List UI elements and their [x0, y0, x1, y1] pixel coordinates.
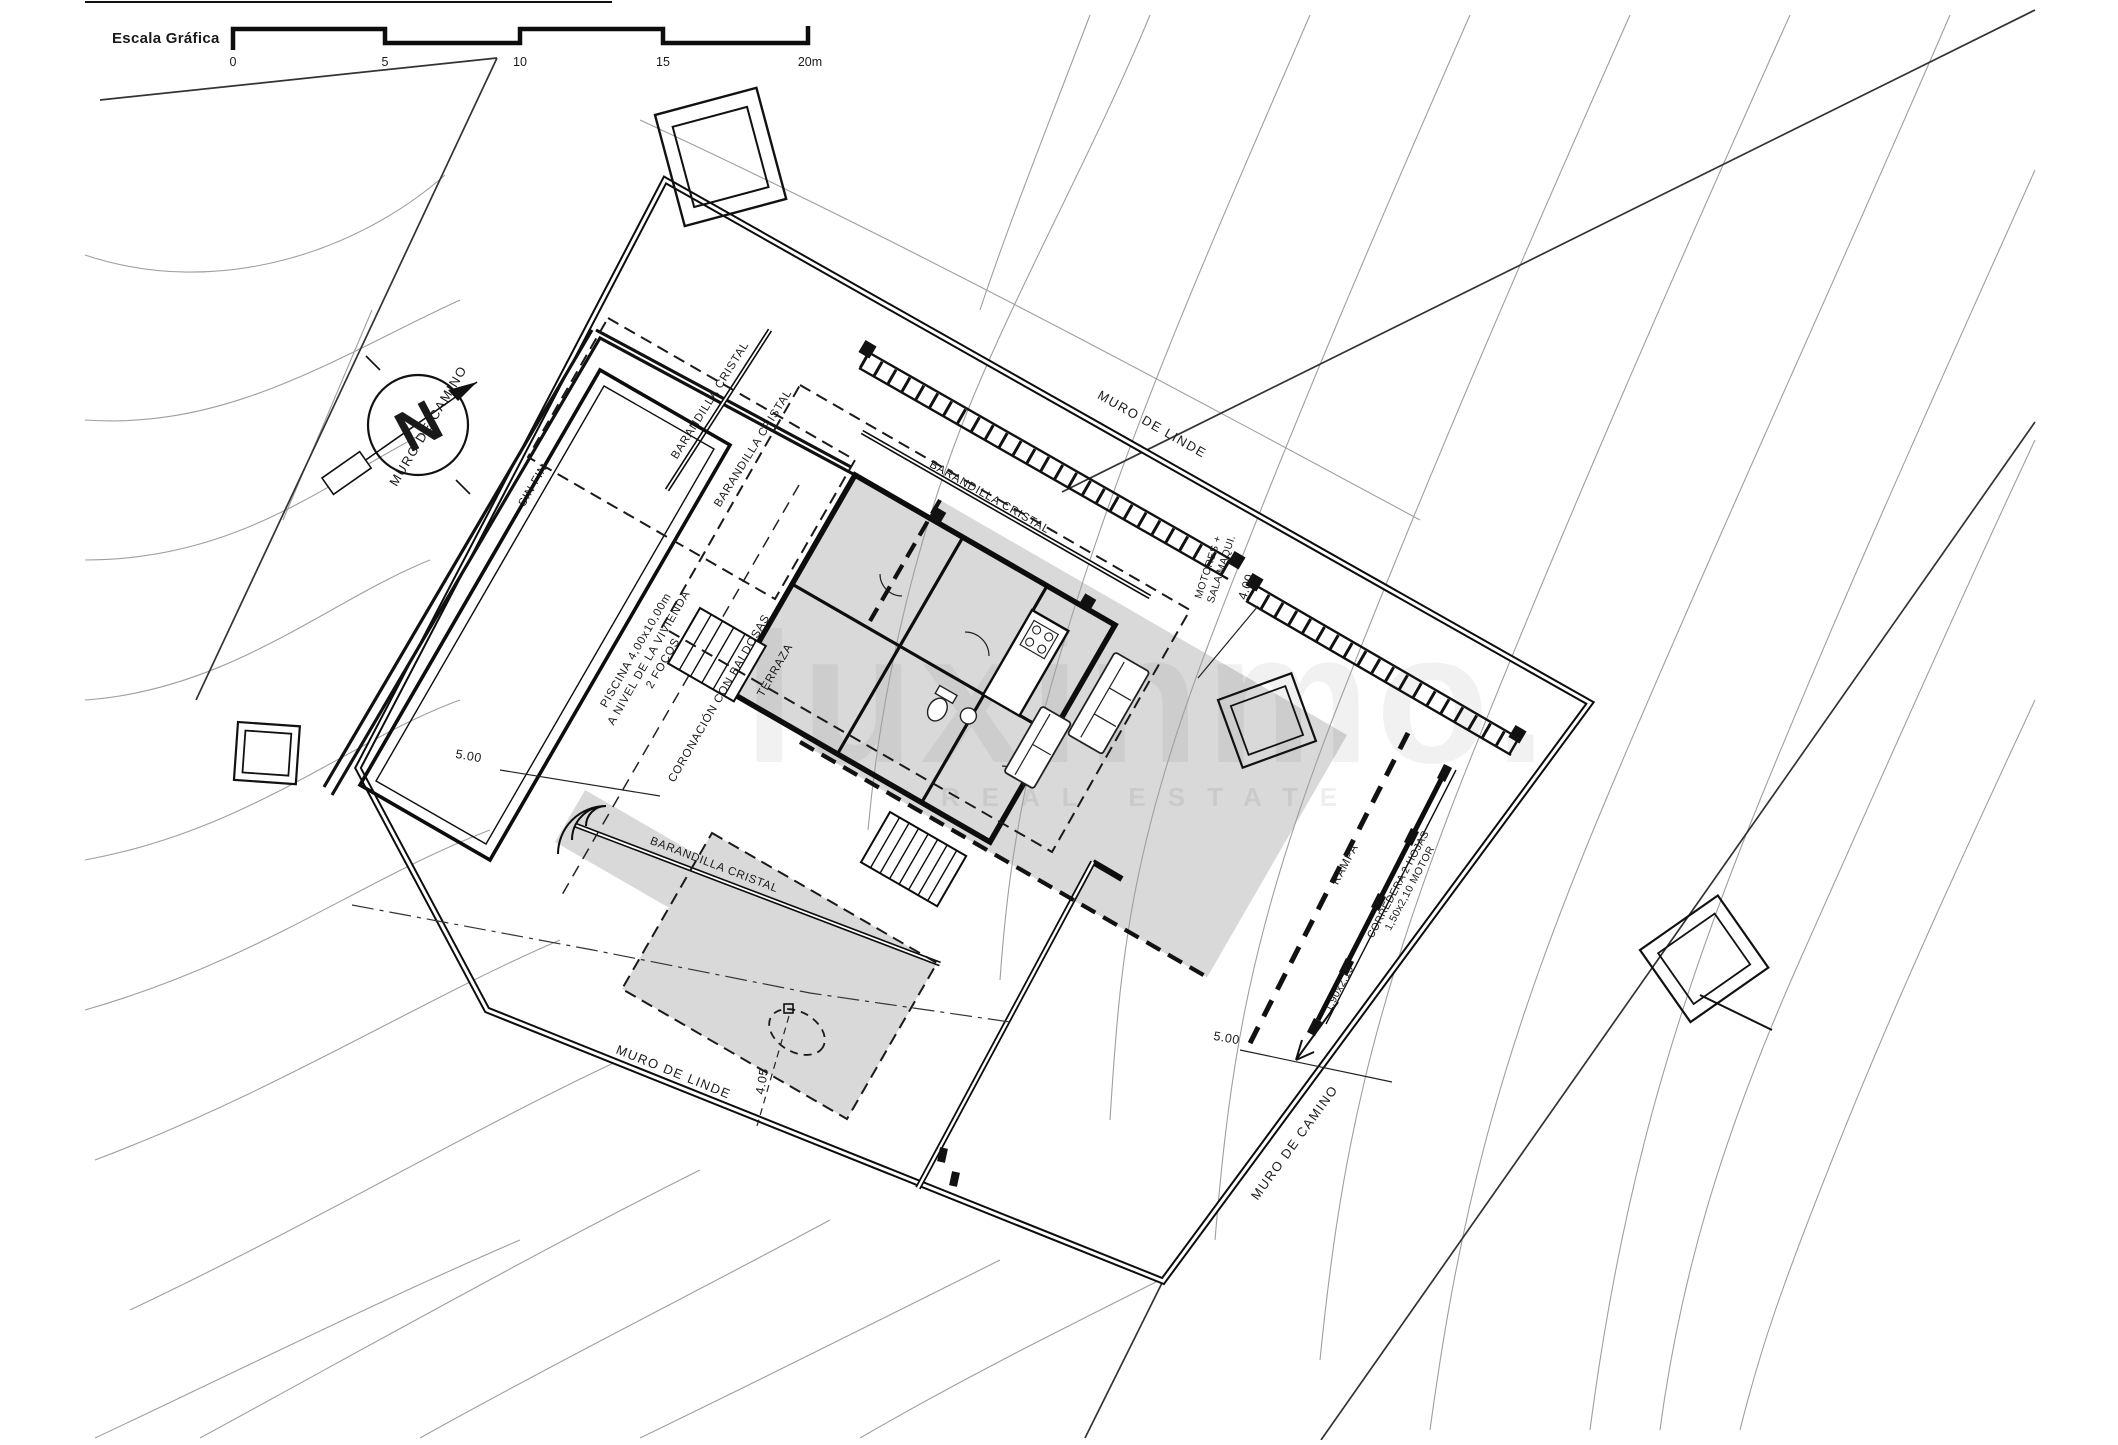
- compass-tail-box: [322, 452, 371, 495]
- driveway-wall-core: [918, 862, 1093, 1188]
- label-rampa: RAMPA: [1330, 842, 1361, 887]
- structure-east: [1640, 896, 1772, 1030]
- scale-tick-0: 0: [230, 55, 237, 69]
- label-barandilla-1: BARANDILLA CRISTAL: [669, 339, 751, 461]
- structure-west: [234, 722, 300, 784]
- structure-east-tie-line: [1700, 995, 1772, 1030]
- structure-north: [655, 88, 786, 226]
- scale-tick-5: 5: [382, 55, 389, 69]
- scale-tick-15: 15: [656, 55, 670, 69]
- scale-bar-steps: [233, 26, 808, 50]
- site-plan-sheet: luxinmo. REAL ESTATE: [0, 0, 2118, 1440]
- label-corredera-line1: CORREDERA 2 HOJAS: [1365, 829, 1432, 941]
- dim-500-right: 5.00: [1213, 1029, 1241, 1047]
- compass-needle-tail: [322, 452, 371, 495]
- dim-405: 4.05: [753, 1067, 771, 1095]
- scale-tick-10: 10: [513, 55, 527, 69]
- scale-tick-20: 20m: [798, 55, 822, 69]
- structure-north-outer: [655, 88, 786, 226]
- structure-west-inner: [242, 731, 291, 776]
- scale-bar: Escala Gráfica 0 5 10 15 20m: [112, 26, 822, 69]
- watermark-tagline: REAL ESTATE: [941, 782, 1359, 812]
- gate-hinge-marks: [941, 1148, 956, 1186]
- dim-500-left: 5.00: [455, 747, 483, 765]
- site-plan-drawing: luxinmo. REAL ESTATE: [0, 0, 2118, 1440]
- scale-bar-label: Escala Gráfica: [112, 30, 220, 47]
- label-corredera: CORREDERA 2 HOJAS 1,50x2,10 MOTOR: [1361, 823, 1444, 946]
